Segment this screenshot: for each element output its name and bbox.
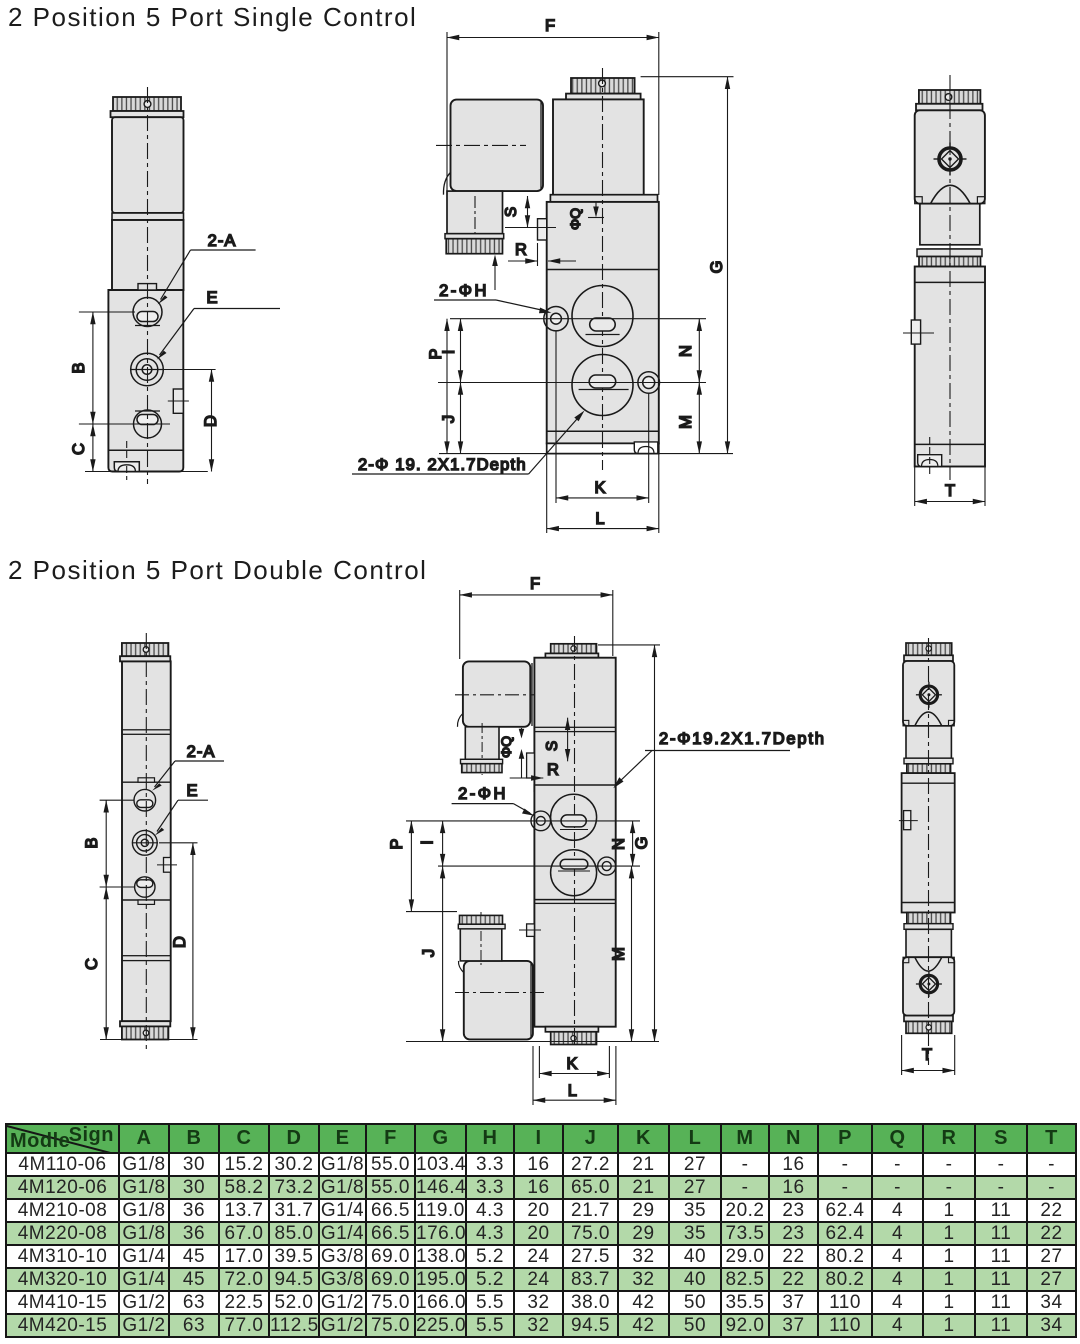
svg-text:ΦQ: ΦQ [567,208,583,230]
svg-text:N: N [677,345,695,357]
svg-text:L: L [595,510,604,528]
svg-text:ΦQ: ΦQ [498,736,514,758]
svg-text:J: J [440,415,458,423]
svg-text:B: B [70,362,88,373]
svg-text:2-ΦH: 2-ΦH [439,282,489,300]
svg-text:D: D [202,415,220,427]
svg-text:2-Φ 19. 2X1.7Depth: 2-Φ 19. 2X1.7Depth [358,456,527,474]
svg-text:R: R [515,241,527,259]
svg-text:D: D [171,936,189,948]
svg-text:C: C [83,958,101,970]
svg-text:G: G [708,261,726,274]
svg-text:K: K [566,1055,577,1073]
svg-text:N: N [610,838,628,850]
svg-text:T: T [922,1046,932,1064]
svg-text:J: J [420,949,438,957]
svg-text:I: I [440,350,458,355]
svg-text:B: B [83,837,101,848]
svg-text:S: S [503,207,520,217]
svg-text:K: K [594,479,605,497]
svg-text:T: T [945,482,955,500]
svg-text:R: R [547,761,559,779]
svg-text:I: I [419,840,437,845]
svg-text:P: P [388,838,406,849]
svg-text:C: C [70,443,88,455]
svg-text:F: F [530,575,540,593]
svg-text:E: E [186,782,197,800]
svg-text:L: L [568,1082,577,1100]
svg-text:M: M [677,415,695,429]
svg-text:2-A: 2-A [187,743,216,761]
svg-text:2-ΦH: 2-ΦH [458,785,508,803]
svg-text:G: G [633,837,651,850]
svg-text:2-A: 2-A [208,232,237,250]
svg-text:E: E [206,289,217,307]
svg-text:F: F [545,17,555,35]
svg-text:M: M [610,947,628,961]
svg-text:S: S [544,741,561,751]
svg-text:2-Φ19.2X1.7Depth: 2-Φ19.2X1.7Depth [659,730,826,748]
